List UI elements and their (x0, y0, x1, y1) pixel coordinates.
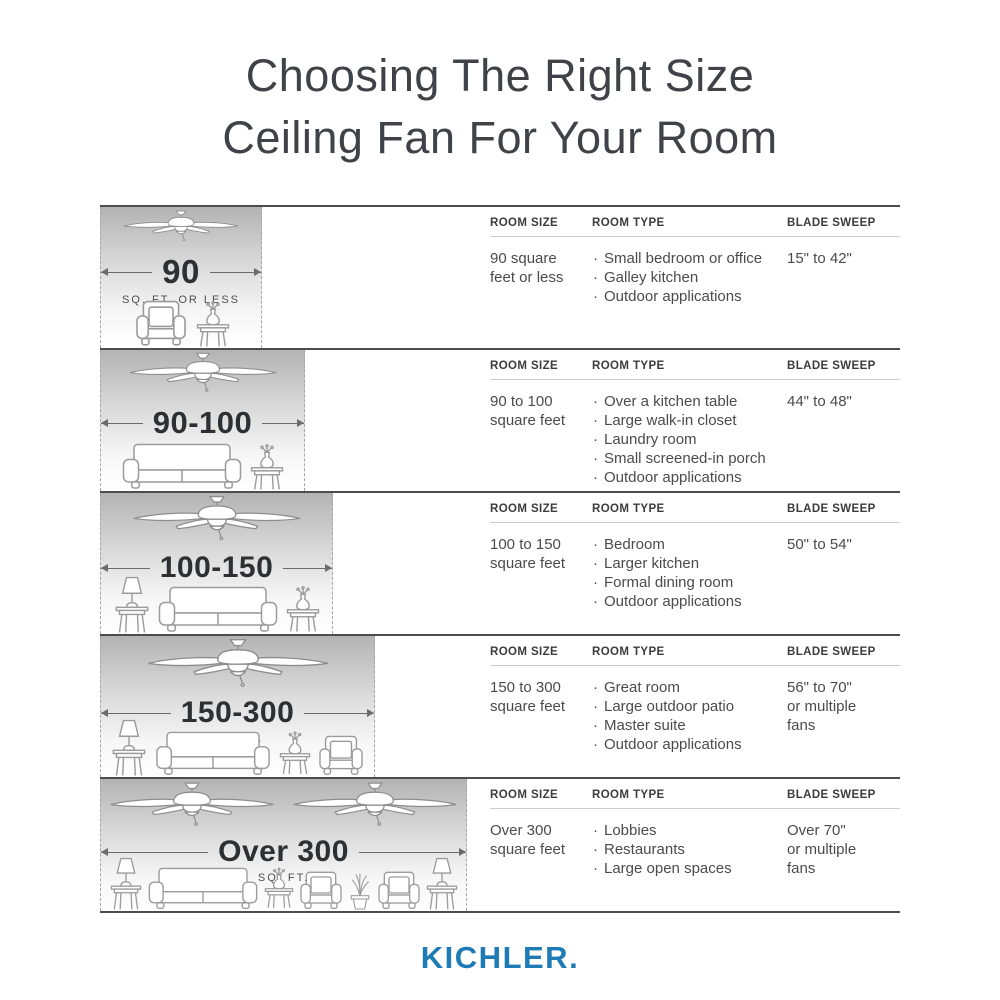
ceiling-fan-icon (123, 495, 311, 545)
furniture-illustration (101, 443, 304, 491)
ceiling-fan-illustration (101, 781, 466, 831)
infographic-page: Choosing The Right SizeCeiling Fan For Y… (0, 0, 1000, 1000)
end-table-lamp-icon (114, 576, 150, 634)
size-value: 90-100 (143, 405, 263, 441)
room-type-item: Larger kitchen (592, 554, 779, 573)
potted-plant-icon (348, 871, 372, 911)
arrow-right-icon (210, 272, 261, 273)
room-type-list: LobbiesRestaurantsLarge open spaces (592, 821, 787, 878)
armchair-icon (377, 871, 421, 911)
room-type-list: Great roomLarge outdoor patioMaster suit… (592, 678, 787, 754)
room-type-item: Outdoor applications (592, 468, 779, 487)
arrow-left-icon (101, 272, 152, 273)
fan-size-table: 90 SQ. FT. OR LESS ROOM SIZE ROOM TYPE B… (100, 205, 900, 913)
column-header-room-size: ROOM SIZE (490, 207, 592, 237)
room-type-item: Small screened-in porch (592, 449, 779, 468)
room-type-item: Lobbies (592, 821, 779, 840)
row-text-cells: ROOM SIZE ROOM TYPE BLADE SWEEP Over 300… (490, 779, 900, 878)
sofa-icon (121, 443, 243, 491)
room-type-item: Small bedroom or office (592, 249, 779, 268)
ceiling-fan-icon (126, 638, 350, 692)
row-text-cells: ROOM SIZE ROOM TYPE BLADE SWEEP 90 squar… (490, 207, 900, 306)
size-row-over-300: Over 300 SQ. FT. ROOM SIZE ROOM TYPE BL (100, 777, 900, 911)
size-row-100-150: 100-150 SQ. FT. ROOM SIZE ROOM TYPE BLAD… (100, 491, 900, 634)
ceiling-fan-illustration (101, 209, 261, 245)
arrow-left-icon (101, 423, 143, 424)
room-size-value: Over 300 square feet (490, 821, 592, 878)
ceiling-fan-illustration (101, 638, 374, 692)
room-type-item: Large walk-in closet (592, 411, 779, 430)
room-type-item: Large outdoor patio (592, 697, 779, 716)
room-size-value: 90 square feet or less (490, 249, 592, 306)
room-type-item: Over a kitchen table (592, 392, 779, 411)
arrow-left-icon (101, 713, 171, 714)
side-table-vase-icon (250, 443, 284, 491)
size-row-90-100: 90-100 SQ. FT. ROOM SIZE ROOM TYPE BLADE… (100, 348, 900, 491)
blade-sweep-value: 56" to 70" or multiple fans (787, 678, 900, 754)
page-title: Choosing The Right SizeCeiling Fan For Y… (0, 0, 1000, 169)
ceiling-fan-icon (124, 352, 282, 396)
side-table-vase-icon (264, 865, 294, 911)
blade-sweep-value: 50" to 54" (787, 535, 900, 611)
arrow-right-icon (359, 852, 466, 853)
column-header-room-size: ROOM SIZE (490, 779, 592, 809)
room-type-item: Restaurants (592, 840, 779, 859)
furniture-illustration (101, 576, 332, 634)
room-type-item: Large open spaces (592, 859, 779, 878)
room-type-item: Bedroom (592, 535, 779, 554)
room-type-item: Outdoor applications (592, 735, 779, 754)
title-line-1: Choosing The Right Size (246, 50, 754, 101)
blade-sweep-value: Over 70" or multiple fans (787, 821, 900, 878)
room-width-measure: 90 (101, 253, 261, 291)
column-header-room-type: ROOM TYPE (592, 350, 787, 380)
room-type-list: BedroomLarger kitchenFormal dining roomO… (592, 535, 787, 611)
sofa-icon (154, 731, 272, 777)
row-text-cells: ROOM SIZE ROOM TYPE BLADE SWEEP 100 to 1… (490, 493, 900, 611)
ceiling-fan-icon (108, 781, 276, 831)
room-illustration-90-100: 90-100 SQ. FT. (100, 350, 305, 491)
side-table-vase-icon (279, 729, 311, 777)
ceiling-fan-illustration (101, 495, 332, 545)
room-type-item: Outdoor applications (592, 592, 779, 611)
room-type-list: Over a kitchen tableLarge walk-in closet… (592, 392, 787, 487)
column-header-blade-sweep: BLADE SWEEP (787, 207, 900, 237)
column-header-room-type: ROOM TYPE (592, 207, 787, 237)
title-line-2: Ceiling Fan For Your Room (222, 112, 777, 163)
room-type-item: Galley kitchen (592, 268, 779, 287)
column-header-blade-sweep: BLADE SWEEP (787, 636, 900, 666)
size-row-150-300: 150-300 SQ. FT. ROOM SIZE ROOM TYPE BLAD… (100, 634, 900, 777)
room-size-value: 90 to 100 square feet (490, 392, 592, 487)
kichler-logo: KICHLER. (0, 940, 1000, 976)
arrow-right-icon (283, 568, 332, 569)
room-size-value: 150 to 300 square feet (490, 678, 592, 754)
column-header-blade-sweep: BLADE SWEEP (787, 350, 900, 380)
room-illustration-150-300: 150-300 SQ. FT. (100, 636, 375, 777)
ceiling-fan-icon (122, 209, 240, 245)
room-size-value: 100 to 150 square feet (490, 535, 592, 611)
room-illustration-90: 90 SQ. FT. OR LESS (100, 207, 262, 348)
column-header-blade-sweep: BLADE SWEEP (787, 779, 900, 809)
arrow-right-icon (304, 713, 374, 714)
size-value: 90 (152, 253, 210, 291)
column-header-room-type: ROOM TYPE (592, 779, 787, 809)
end-table-lamp-icon (111, 719, 147, 777)
end-table-lamp-icon (426, 857, 458, 911)
end-table-lamp-icon (110, 857, 142, 911)
row-text-cells: ROOM SIZE ROOM TYPE BLADE SWEEP 90 to 10… (490, 350, 900, 487)
room-type-item: Master suite (592, 716, 779, 735)
furniture-illustration (101, 300, 261, 348)
side-table-vase-icon (286, 584, 320, 634)
ceiling-fan-icon (291, 781, 459, 831)
column-header-room-size: ROOM SIZE (490, 493, 592, 523)
blade-sweep-value: 15" to 42" (787, 249, 900, 306)
blade-sweep-value: 44" to 48" (787, 392, 900, 487)
room-type-item: Outdoor applications (592, 287, 779, 306)
armchair-icon (299, 871, 343, 911)
room-width-measure: 90-100 (101, 405, 304, 441)
room-illustration-100-150: 100-150 SQ. FT. (100, 493, 333, 634)
sofa-icon (157, 586, 279, 634)
armchair-icon (133, 300, 189, 348)
armchair-icon (318, 735, 364, 777)
ceiling-fan-illustration (101, 352, 304, 396)
column-header-room-type: ROOM TYPE (592, 493, 787, 523)
room-type-list: Small bedroom or officeGalley kitchenOut… (592, 249, 787, 306)
row-text-cells: ROOM SIZE ROOM TYPE BLADE SWEEP 150 to 3… (490, 636, 900, 754)
room-type-item: Formal dining room (592, 573, 779, 592)
column-header-blade-sweep: BLADE SWEEP (787, 493, 900, 523)
column-header-room-type: ROOM TYPE (592, 636, 787, 666)
sofa-icon (147, 867, 259, 911)
side-table-vase-icon (196, 300, 230, 348)
room-illustration-over-300: Over 300 SQ. FT. (100, 779, 467, 911)
arrow-left-icon (101, 852, 208, 853)
column-header-room-size: ROOM SIZE (490, 350, 592, 380)
arrow-right-icon (262, 423, 304, 424)
furniture-illustration (101, 719, 374, 777)
arrow-left-icon (101, 568, 150, 569)
room-type-item: Laundry room (592, 430, 779, 449)
size-row-90-or-less: 90 SQ. FT. OR LESS ROOM SIZE ROOM TYPE B… (100, 205, 900, 348)
furniture-illustration (101, 857, 466, 911)
room-type-item: Great room (592, 678, 779, 697)
column-header-room-size: ROOM SIZE (490, 636, 592, 666)
